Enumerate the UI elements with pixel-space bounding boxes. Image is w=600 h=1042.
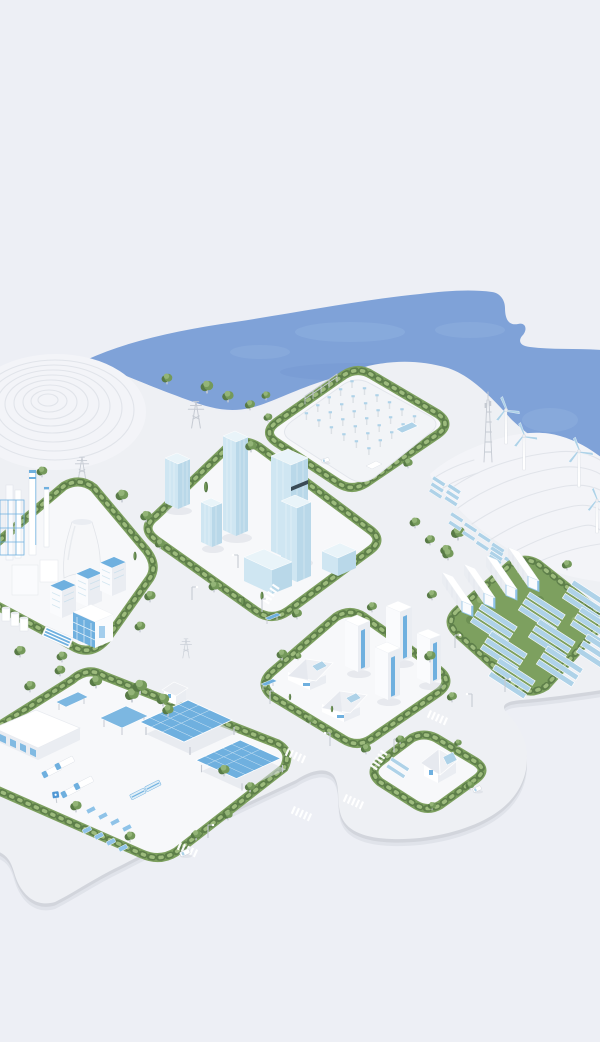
blue-roof-building [100, 557, 126, 596]
blue-roof-building [50, 580, 76, 618]
glass-tower [165, 453, 190, 509]
cypress-icon [289, 694, 291, 700]
water-ripple [522, 408, 578, 432]
glass-tower [201, 498, 222, 547]
city-illustration [0, 0, 600, 1042]
scene-canvas [0, 0, 600, 1042]
cypress-icon [133, 552, 136, 561]
water-ripple [435, 322, 505, 338]
chimney [44, 487, 49, 547]
cypress-icon [204, 482, 208, 493]
cypress-icon [331, 706, 333, 712]
cypress-icon [241, 597, 245, 607]
chimney [29, 470, 36, 555]
glass-tower [223, 431, 248, 536]
water-ripple [295, 322, 405, 342]
blue-roof-building [76, 568, 102, 607]
apartment-tower [345, 615, 370, 672]
water-ripple [230, 345, 290, 359]
apartment-tower [375, 642, 400, 700]
